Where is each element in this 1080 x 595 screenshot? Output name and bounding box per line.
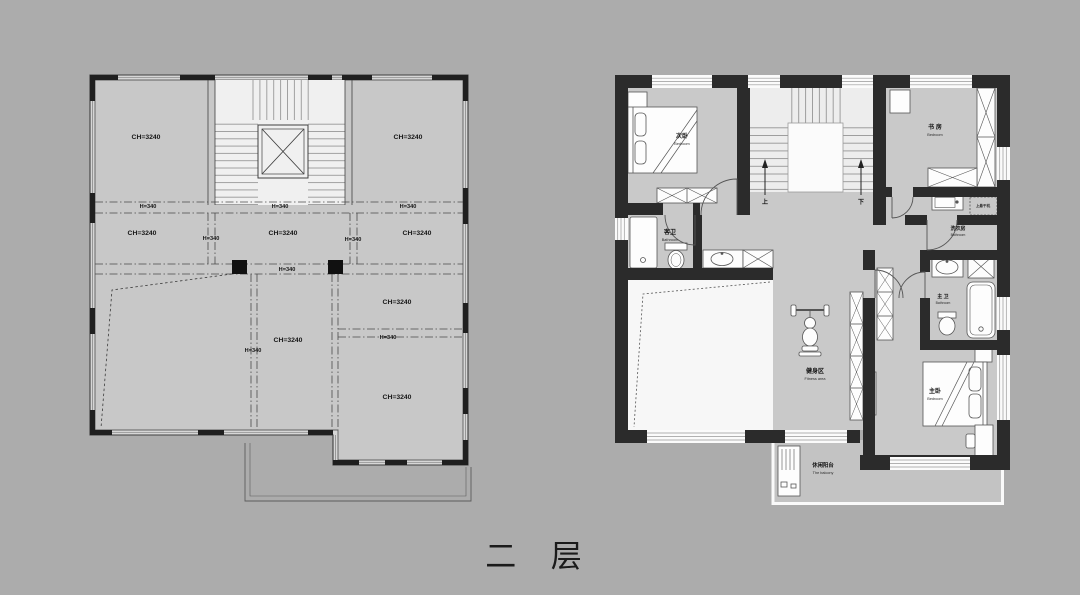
master-bathroom-label: 主 卫 — [937, 293, 948, 300]
ch-label: CH=3240 — [403, 230, 432, 237]
elevator-shaft — [258, 125, 308, 178]
ch-label: CH=3240 — [383, 394, 412, 401]
study-label: 书 房 — [928, 123, 942, 131]
guest-bathroom-sublabel: Bathroom — [662, 238, 678, 242]
guest-bathroom-label: 客卫 — [663, 228, 676, 236]
fitness-area-label: 健身区 — [806, 367, 824, 375]
right-floor-plan-furnished: 次卧 Bedroom 书 房 Bedroom 客卫 Bathroom 洗衣房 B… — [605, 58, 1015, 510]
ch-label: CH=3240 — [269, 230, 298, 237]
shower-tray — [630, 217, 657, 268]
laundry-sublabel: Bathroom — [951, 233, 966, 237]
ch-label: CH=3240 — [394, 134, 423, 141]
tall-cabinet — [977, 88, 995, 187]
h-label: H=340 — [279, 267, 296, 273]
master-bedroom-sublabel: Bedroom — [927, 397, 942, 401]
h-label: H=340 — [380, 335, 397, 341]
h-label: H=340 — [140, 204, 157, 210]
left-plan-staircase — [208, 80, 352, 205]
left-floor-plan-ceiling: CH=3240 CH=3240 CH=3240 CH=3240 CH=3240 … — [80, 58, 480, 510]
ch-label: CH=3240 — [132, 134, 161, 141]
h-label: H=340 — [272, 204, 289, 210]
dryer-note: 上悬干机 — [976, 203, 991, 208]
stair-up-label: 上 — [762, 198, 768, 206]
toilet-bowl — [939, 317, 955, 335]
void-double-height-area — [628, 280, 773, 430]
stair-down-label: 下 — [858, 199, 864, 206]
ch-label: CH=3240 — [383, 299, 412, 306]
floor-plan-sheet: CH=3240 CH=3240 CH=3240 CH=3240 CH=3240 … — [0, 0, 1080, 595]
chair — [966, 434, 975, 448]
secondary-bedroom-sublabel: Bedroom — [674, 142, 689, 146]
balcony-sublabel: The balcony — [813, 471, 834, 475]
toilet-tank — [665, 243, 687, 250]
secondary-bedroom-label: 次卧 — [676, 132, 688, 140]
h-label: H=340 — [345, 237, 362, 243]
h-label: H=340 — [245, 348, 262, 354]
laundry-label: 洗衣房 — [950, 225, 965, 232]
fitness-area-sublabel: Fitness area — [805, 377, 827, 381]
h-label: H=340 — [400, 204, 417, 210]
balcony-label: 休闲阳台 — [811, 461, 834, 469]
balcony-rack — [778, 446, 800, 496]
master-bedroom-label: 主卧 — [929, 387, 941, 395]
desk — [975, 425, 993, 457]
study-sublabel: Bedroom — [927, 133, 942, 137]
hall-vanity — [703, 250, 773, 268]
h-label: H=340 — [203, 236, 220, 242]
bathtub — [967, 282, 995, 338]
master-bathroom-sublabel: Bathroom — [936, 301, 951, 305]
sheet-title: 二 层 — [0, 531, 1080, 576]
ch-label: CH=3240 — [128, 230, 157, 237]
ch-label: CH=3240 — [274, 337, 303, 344]
